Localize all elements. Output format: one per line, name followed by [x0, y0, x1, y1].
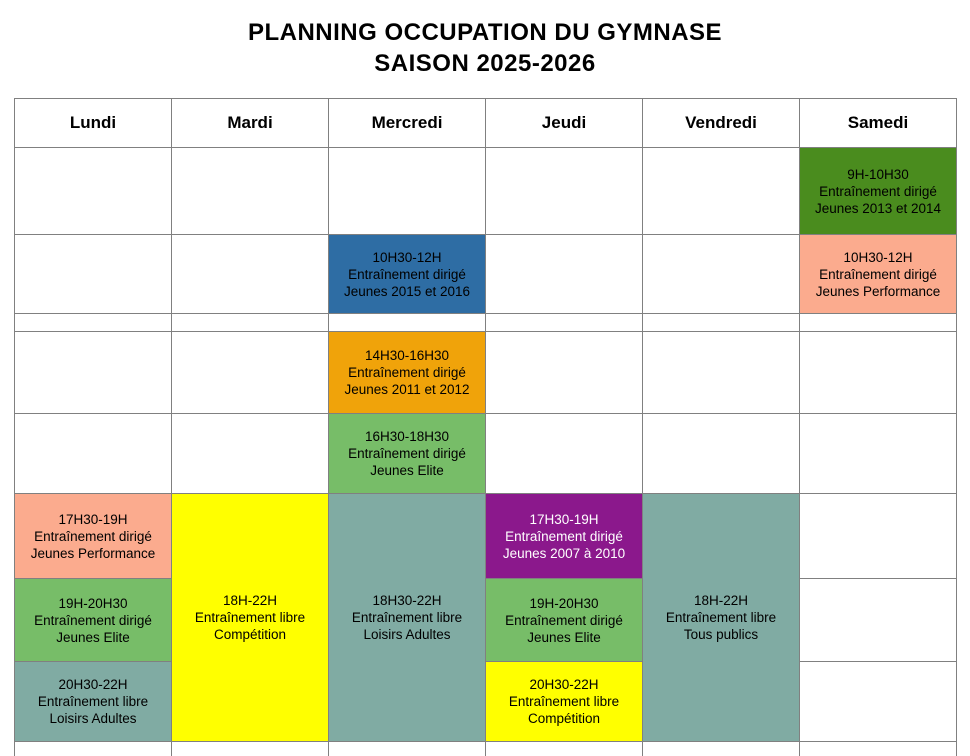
event-cell-samedi-9h-10h30: 9H-10H30 Entraînement dirigé Jeunes 2013… — [800, 148, 957, 235]
event-group: Jeunes Elite — [329, 462, 485, 479]
event-time: 18H-22H — [172, 592, 328, 609]
event-time: 20H30-22H — [486, 676, 642, 693]
event-group: Jeunes Performance — [800, 283, 956, 300]
event-group: Loisirs Adultes — [15, 710, 171, 727]
event-group: Jeunes 2011 et 2012 — [329, 381, 485, 398]
event-group: Jeunes 2015 et 2016 — [329, 283, 485, 300]
event-cell-mercredi-18h30-22h: 18H30-22H Entraînement libre Loisirs Adu… — [329, 494, 486, 742]
event-type: Entraînement dirigé — [329, 445, 485, 462]
event-type: Entraînement dirigé — [329, 364, 485, 381]
row-19h: 19H-20H30 Entraînement dirigé Jeunes Eli… — [15, 579, 957, 662]
empty-cell — [643, 742, 800, 756]
event-type: Entraînement libre — [15, 693, 171, 710]
day-header-mercredi: Mercredi — [329, 99, 486, 148]
event-time: 18H30-22H — [329, 592, 485, 609]
event-time: 16H30-18H30 — [329, 428, 485, 445]
row-16h30: 16H30-18H30 Entraînement dirigé Jeunes E… — [15, 414, 957, 494]
day-header-vendredi: Vendredi — [643, 99, 800, 148]
event-group: Jeunes 2013 et 2014 — [800, 200, 956, 217]
event-cell-mercredi-10h30-12h: 10H30-12H Entraînement dirigé Jeunes 201… — [329, 235, 486, 314]
page-title-line2: SAISON 2025-2026 — [0, 48, 970, 79]
page-title: PLANNING OCCUPATION DU GYMNASE SAISON 20… — [0, 0, 970, 79]
event-time: 19H-20H30 — [486, 595, 642, 612]
empty-cell — [486, 314, 643, 332]
event-cell-mercredi-14h30-16h30: 14H30-16H30 Entraînement dirigé Jeunes 2… — [329, 332, 486, 414]
event-cell-vendredi-18h-22h: 18H-22H Entraînement libre Tous publics — [643, 494, 800, 742]
event-type: Entraînement libre — [486, 693, 642, 710]
planning-table: Lundi Mardi Mercredi Jeudi Vendredi Same… — [14, 98, 957, 756]
event-type: Entraînement dirigé — [15, 612, 171, 629]
event-cell-lundi-19h-20h30: 19H-20H30 Entraînement dirigé Jeunes Eli… — [15, 579, 172, 662]
empty-cell — [172, 414, 329, 494]
event-group: Compétition — [172, 626, 328, 643]
empty-cell — [172, 314, 329, 332]
empty-cell — [643, 414, 800, 494]
event-time: 17H30-19H — [486, 511, 642, 528]
empty-cell — [15, 414, 172, 494]
empty-cell — [15, 742, 172, 756]
row-midday-spacer — [15, 314, 957, 332]
row-20h30: 20H30-22H Entraînement libre Loisirs Adu… — [15, 662, 957, 742]
page-title-line1: PLANNING OCCUPATION DU GYMNASE — [0, 17, 970, 48]
event-time: 19H-20H30 — [15, 595, 171, 612]
row-9h: 9H-10H30 Entraînement dirigé Jeunes 2013… — [15, 148, 957, 235]
event-cell-lundi-20h30-22h: 20H30-22H Entraînement libre Loisirs Adu… — [15, 662, 172, 742]
empty-cell — [800, 494, 957, 579]
empty-cell — [172, 235, 329, 314]
empty-cell — [15, 332, 172, 414]
event-cell-lundi-17h30-19h: 17H30-19H Entraînement dirigé Jeunes Per… — [15, 494, 172, 579]
empty-cell — [329, 314, 486, 332]
empty-cell — [172, 742, 329, 756]
event-time: 14H30-16H30 — [329, 347, 485, 364]
event-time: 10H30-12H — [329, 249, 485, 266]
event-type: Entraînement dirigé — [800, 266, 956, 283]
event-type: Entraînement dirigé — [486, 528, 642, 545]
event-time: 17H30-19H — [15, 511, 171, 528]
event-time: 18H-22H — [643, 592, 799, 609]
empty-cell — [643, 148, 800, 235]
empty-cell — [172, 148, 329, 235]
event-time: 20H30-22H — [15, 676, 171, 693]
event-group: Jeunes 2007 à 2010 — [486, 545, 642, 562]
event-cell-mercredi-16h30-18h30: 16H30-18H30 Entraînement dirigé Jeunes E… — [329, 414, 486, 494]
empty-cell — [800, 414, 957, 494]
event-group: Loisirs Adultes — [329, 626, 485, 643]
row-10h30: 10H30-12H Entraînement dirigé Jeunes 201… — [15, 235, 957, 314]
event-group: Jeunes Elite — [15, 629, 171, 646]
event-group: Jeunes Performance — [15, 545, 171, 562]
empty-cell — [15, 235, 172, 314]
event-type: Entraînement dirigé — [15, 528, 171, 545]
event-cell-jeudi-17h30-19h: 17H30-19H Entraînement dirigé Jeunes 200… — [486, 494, 643, 579]
event-cell-mardi-18h-22h: 18H-22H Entraînement libre Compétition — [172, 494, 329, 742]
empty-cell — [800, 314, 957, 332]
empty-cell — [800, 742, 957, 756]
day-header-samedi: Samedi — [800, 99, 957, 148]
event-group: Tous publics — [643, 626, 799, 643]
empty-cell — [486, 742, 643, 756]
day-header-lundi: Lundi — [15, 99, 172, 148]
row-bottom-clipped — [15, 742, 957, 756]
row-17h30: 17H30-19H Entraînement dirigé Jeunes Per… — [15, 494, 957, 579]
event-type: Entraînement dirigé — [329, 266, 485, 283]
empty-cell — [15, 314, 172, 332]
event-type: Entraînement dirigé — [486, 612, 642, 629]
event-time: 10H30-12H — [800, 249, 956, 266]
event-type: Entraînement libre — [329, 609, 485, 626]
day-header-mardi: Mardi — [172, 99, 329, 148]
empty-cell — [643, 235, 800, 314]
row-14h30: 14H30-16H30 Entraînement dirigé Jeunes 2… — [15, 332, 957, 414]
empty-cell — [486, 414, 643, 494]
event-time: 9H-10H30 — [800, 166, 956, 183]
day-header-jeudi: Jeudi — [486, 99, 643, 148]
empty-cell — [486, 148, 643, 235]
empty-cell — [800, 579, 957, 662]
event-cell-samedi-10h30-12h: 10H30-12H Entraînement dirigé Jeunes Per… — [800, 235, 957, 314]
event-group: Compétition — [486, 710, 642, 727]
event-type: Entraînement libre — [643, 609, 799, 626]
empty-cell — [172, 332, 329, 414]
event-type: Entraînement libre — [172, 609, 328, 626]
event-cell-jeudi-20h30-22h: 20H30-22H Entraînement libre Compétition — [486, 662, 643, 742]
header-row: Lundi Mardi Mercredi Jeudi Vendredi Same… — [15, 99, 957, 148]
event-type: Entraînement dirigé — [800, 183, 956, 200]
empty-cell — [643, 314, 800, 332]
empty-cell — [486, 332, 643, 414]
event-group: Jeunes Elite — [486, 629, 642, 646]
empty-cell — [486, 235, 643, 314]
empty-cell — [800, 332, 957, 414]
empty-cell — [329, 148, 486, 235]
empty-cell — [329, 742, 486, 756]
empty-cell — [15, 148, 172, 235]
empty-cell — [643, 332, 800, 414]
empty-cell — [800, 662, 957, 742]
event-cell-jeudi-19h-20h30: 19H-20H30 Entraînement dirigé Jeunes Eli… — [486, 579, 643, 662]
